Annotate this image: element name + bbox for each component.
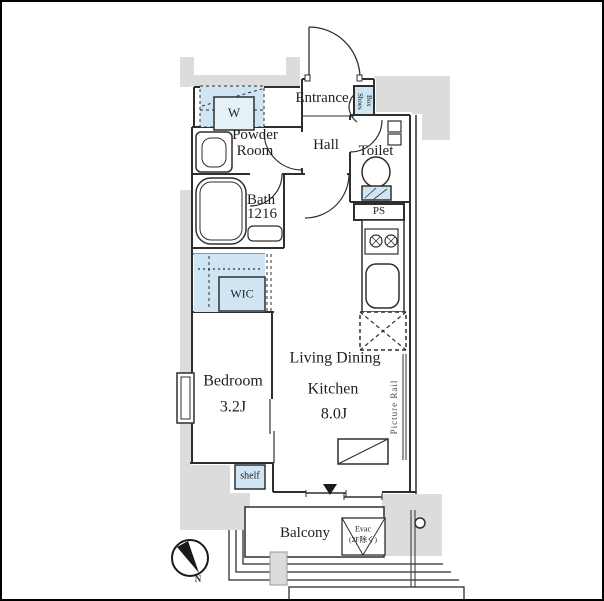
floor-plan: Entrance Shoes Box Powder Room Hall Toil… <box>0 0 604 601</box>
sink <box>366 264 399 308</box>
label-balcony: Balcony <box>280 525 330 541</box>
label-bedroom-size: 3.2J <box>220 398 246 415</box>
compass-icon <box>172 540 208 576</box>
label-picture-rail: Picture Rail <box>389 380 399 435</box>
drain-circle <box>415 518 425 528</box>
ac-unit <box>338 439 388 464</box>
label-shoes-box: Shoes Box <box>355 86 373 116</box>
toilet-shelf-upper <box>388 121 401 132</box>
label-hall: Hall <box>313 137 339 153</box>
label-washer: W <box>228 106 240 120</box>
label-bath-size: 1216 <box>247 206 277 222</box>
toilet-tank <box>362 186 391 200</box>
label-entrance: Entrance <box>295 90 348 106</box>
label-shelf: shelf <box>240 472 259 483</box>
refrigerator-space <box>360 312 406 350</box>
label-powder-room: Powder Room <box>221 127 289 159</box>
entrance-door <box>305 27 362 81</box>
label-ldk-size: 8.0J <box>321 405 347 422</box>
label-evac-line2: (2F除く) <box>349 536 377 544</box>
label-evac-line1: Evac <box>355 526 371 535</box>
label-toilet: Toilet <box>359 143 394 159</box>
wic-closet <box>194 254 271 312</box>
bath-counter <box>248 226 282 241</box>
label-ps: PS <box>373 206 385 218</box>
label-ldk-line2: Kitchen <box>308 380 359 397</box>
bedroom-window <box>177 373 194 423</box>
label-ldk-line1: Living Dining <box>289 349 380 366</box>
label-compass-north: N <box>195 575 202 585</box>
label-bedroom: Bedroom <box>203 372 263 389</box>
kitchen-counter <box>362 220 404 312</box>
label-wic: WIC <box>230 288 253 301</box>
